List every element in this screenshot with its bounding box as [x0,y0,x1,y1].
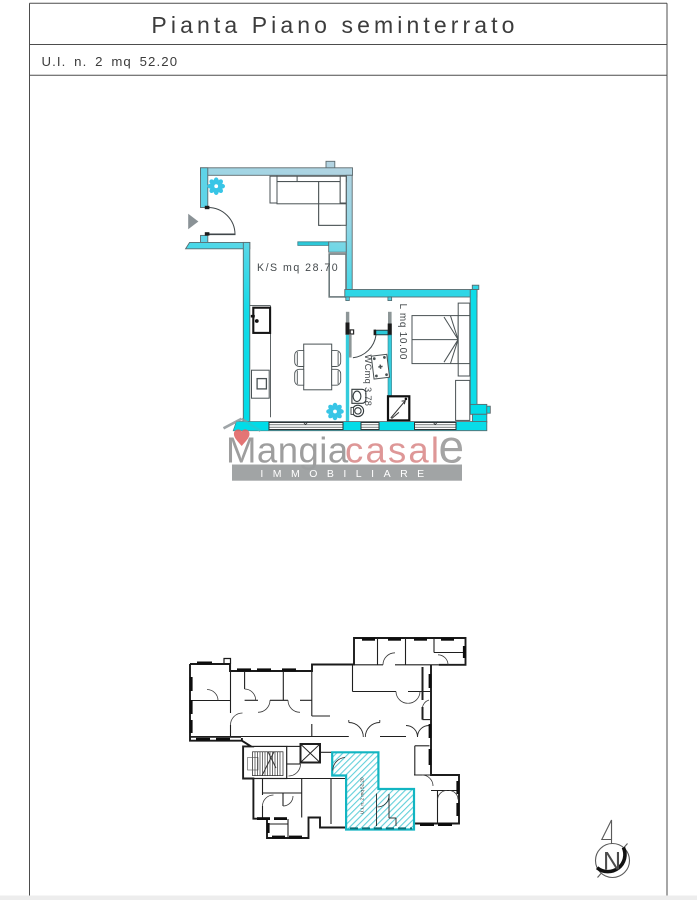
svg-text:L mq 10.00: L mq 10.00 [397,304,408,361]
svg-text:casal: casal [345,430,441,471]
svg-text:N: N [603,848,621,876]
svg-text:U.I. n. 2 mq 52.20: U.I. n. 2 mq 52.20 [42,54,179,69]
svg-text:IMMOBILIARE: IMMOBILIARE [260,468,433,480]
svg-text:Pianta Piano seminterrato: Pianta Piano seminterrato [151,12,518,38]
svg-text:U.I. n. 2 mq 52.20: U.I. n. 2 mq 52.20 [360,777,365,814]
svg-text:WCmq 3.78: WCmq 3.78 [363,355,373,407]
svg-text:Mangia: Mangia [226,430,349,471]
svg-text:K/S mq 28.70: K/S mq 28.70 [257,262,339,274]
